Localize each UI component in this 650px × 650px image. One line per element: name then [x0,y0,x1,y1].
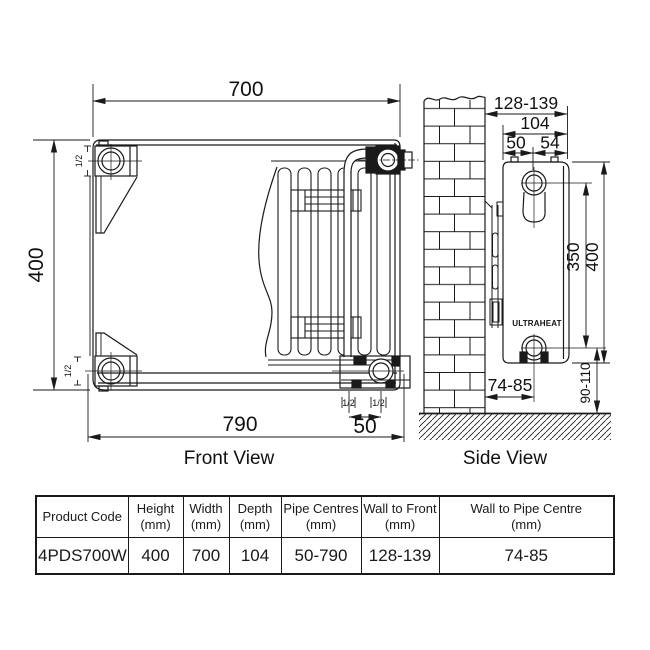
convector-fins [278,168,390,355]
dim-label-pipe-to-front: 54 [540,133,560,153]
cutaway-line [259,167,277,357]
value-pipe-centres: 50-790 [281,538,361,575]
side-view: 128-139 104 50 54 350 400 90-110 74-85 U… [419,93,611,469]
top-left-connection [88,141,142,233]
spec-table-data-row: 4PDS700W 400 700 104 50-790 128-139 74-8… [36,538,614,575]
dim-label-floor-to-pipe: 90-110 [578,362,593,403]
top-right-valve [358,146,420,174]
side-view-title: Side View [463,448,547,469]
header-label: Wall to Front [363,501,438,517]
dim-label-50: 50 [353,415,376,438]
header-label: Product Code [43,509,123,524]
dim-label-wall-to-front: 128-139 [494,93,558,113]
front-view: 700 400 790 50 1/2 1/2 1/2 1/2 Front Vie… [25,78,420,469]
dim-label-400-front: 400 [25,247,48,282]
value-width: 700 [183,538,229,575]
header-height: Height (mm) [128,496,183,538]
conn-size-bottom-a: 1/2 [342,398,355,408]
technical-drawing: 700 400 790 50 1/2 1/2 1/2 1/2 Front Vie… [0,0,650,490]
spec-table-header-row: Product Code Height (mm) Width (mm) Dept… [36,496,614,538]
value-product-code: 4PDS700W [36,538,128,575]
value-wall-to-pipe-centre: 74-85 [439,538,614,575]
riser-pipe [344,149,369,358]
header-depth: Depth (mm) [229,496,281,538]
header-label: Depth [231,501,280,517]
header-wall-to-front: Wall to Front (mm) [361,496,439,538]
header-width: Width (mm) [183,496,229,538]
conn-size-bottom-left: 1/2 [63,365,73,378]
dim-label-400-side: 400 [582,242,602,271]
header-label: Pipe Centres [283,501,360,517]
header-label: Height [130,501,182,517]
value-wall-to-front: 128-139 [361,538,439,575]
spec-table: Product Code Height (mm) Width (mm) Dept… [35,495,615,575]
dim-label-790: 790 [222,413,257,436]
brick-wall [424,96,485,413]
header-product-code: Product Code [36,496,128,538]
ground [419,414,611,441]
header-label: Width [185,501,228,517]
value-height: 400 [128,538,183,575]
header-unit: (mm) [363,517,438,533]
dim-label-back-to-pipe: 50 [506,133,526,153]
side-top-pipe [521,167,592,228]
header-unit: (mm) [283,517,360,533]
header-unit: (mm) [441,517,613,533]
side-radiator-body [503,157,569,363]
brand-logo-text: ULTRAHEAT [512,319,562,328]
front-view-title: Front View [184,448,275,469]
header-wall-to-pipe-centre: Wall to Pipe Centre (mm) [439,496,614,538]
dim-label-depth: 104 [520,113,549,133]
conn-size-top-left: 1/2 [74,155,84,168]
radiator-dimension-diagram: 700 400 790 50 1/2 1/2 1/2 1/2 Front Vie… [0,0,650,650]
wall-bracket [485,201,503,328]
dim-label-700: 700 [228,78,263,101]
header-unit: (mm) [130,517,182,533]
dim-label-350: 350 [563,242,583,271]
header-unit: (mm) [231,517,280,533]
value-depth: 104 [229,538,281,575]
conn-size-bottom-b: 1/2 [372,398,385,408]
header-pipe-centres: Pipe Centres (mm) [281,496,361,538]
dim-label-wall-to-pipe: 74-85 [488,375,533,395]
header-unit: (mm) [185,517,228,533]
header-label: Wall to Pipe Centre [441,501,613,517]
